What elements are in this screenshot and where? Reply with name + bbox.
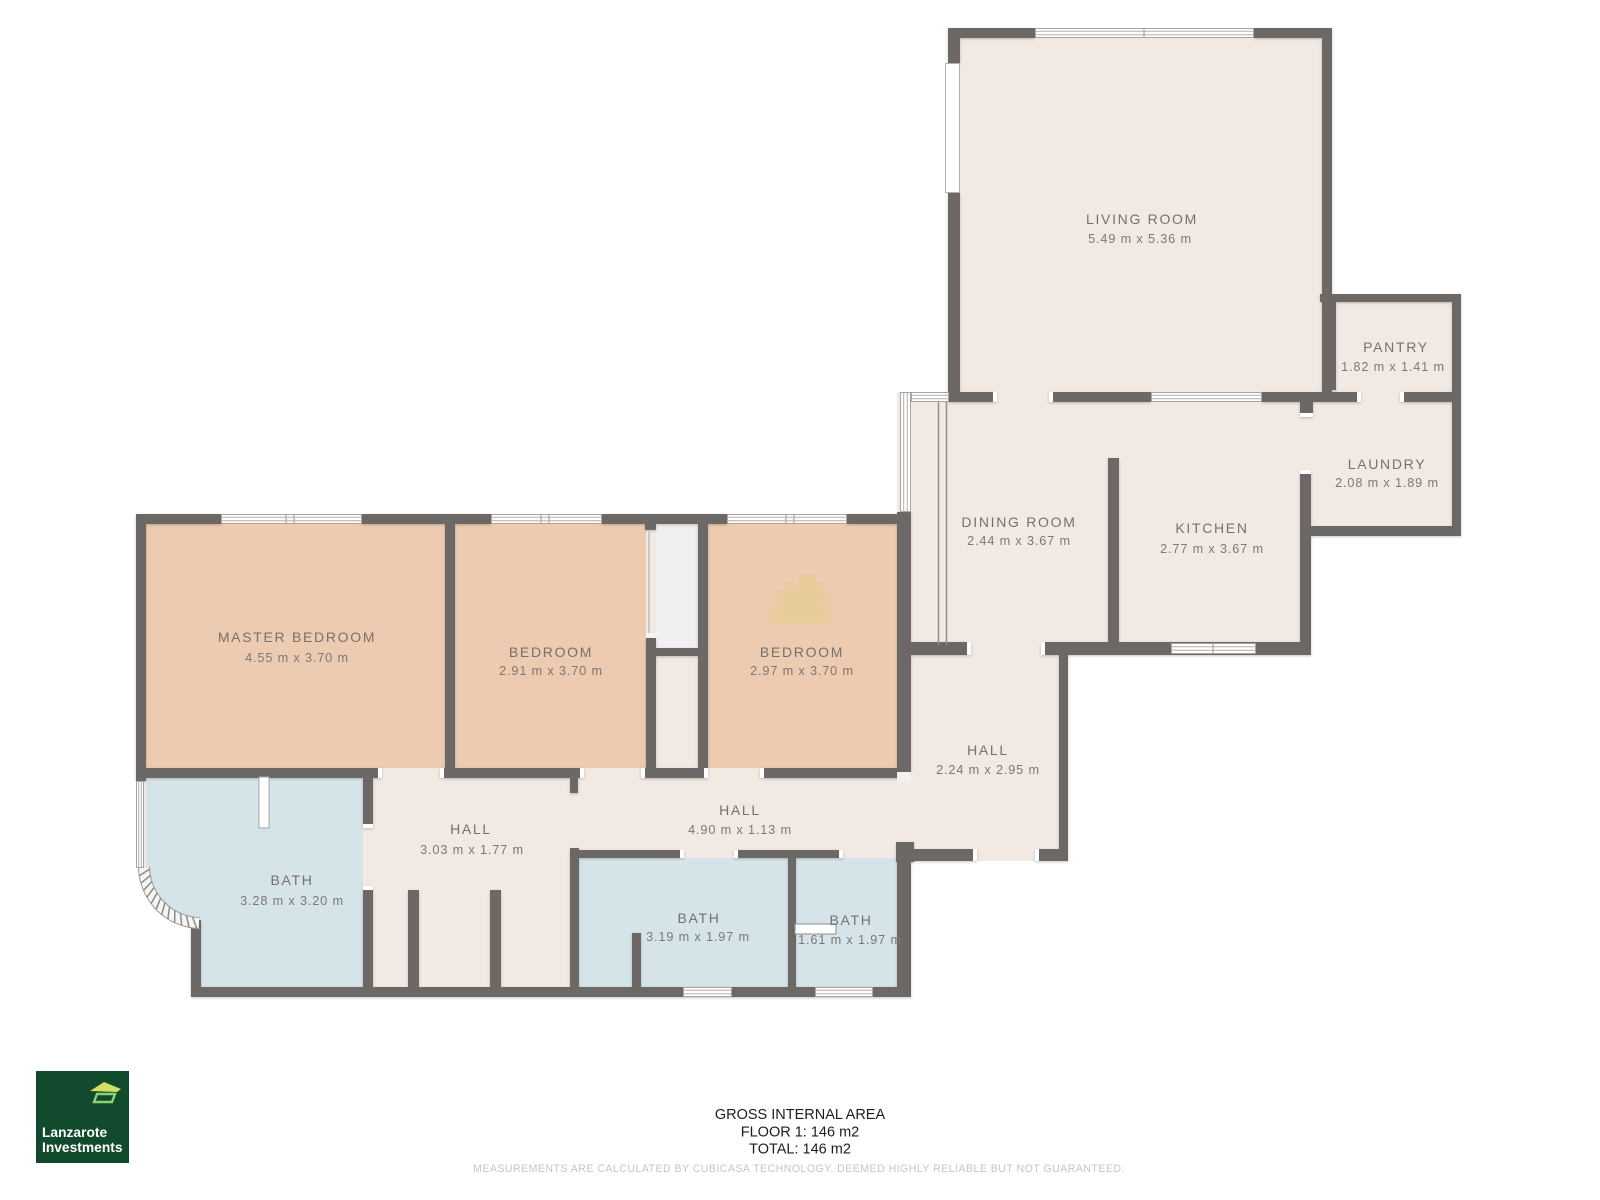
svg-text:HALL: HALL (450, 821, 492, 837)
svg-text:LAUNDRY: LAUNDRY (1348, 456, 1427, 472)
svg-text:2.97 m x 3.70 m: 2.97 m x 3.70 m (750, 664, 854, 678)
svg-text:5.49 m x 5.36 m: 5.49 m x 5.36 m (1088, 232, 1192, 246)
svg-text:2.77 m x 3.67 m: 2.77 m x 3.67 m (1160, 542, 1264, 556)
svg-text:2.91 m x 3.70 m: 2.91 m x 3.70 m (499, 664, 603, 678)
svg-text:BEDROOM: BEDROOM (760, 644, 844, 660)
svg-text:1.82 m x 1.41 m: 1.82 m x 1.41 m (1341, 360, 1445, 374)
svg-text:MEASUREMENTS ARE CALCULATED BY: MEASUREMENTS ARE CALCULATED BY CUBICASA … (473, 1163, 1125, 1175)
svg-text:3.19 m x 1.97 m: 3.19 m x 1.97 m (646, 930, 750, 944)
svg-text:HALL: HALL (719, 802, 761, 818)
svg-text:Investments: Investments (42, 1140, 123, 1155)
svg-text:4.90 m x 1.13 m: 4.90 m x 1.13 m (688, 823, 792, 837)
svg-text:DINING ROOM: DINING ROOM (961, 514, 1076, 530)
svg-text:BATH: BATH (829, 912, 872, 928)
svg-text:1.61 m x 1.97 m: 1.61 m x 1.97 m (798, 933, 902, 947)
svg-text:HALL: HALL (967, 742, 1009, 758)
svg-text:2.08 m x 1.89 m: 2.08 m x 1.89 m (1335, 476, 1439, 490)
svg-text:TOTAL: 146 m2: TOTAL: 146 m2 (749, 1142, 851, 1158)
svg-text:BEDROOM: BEDROOM (509, 644, 593, 660)
svg-text:3.03 m x 1.77 m: 3.03 m x 1.77 m (420, 843, 524, 857)
svg-text:KITCHEN: KITCHEN (1175, 520, 1248, 536)
svg-text:PANTRY: PANTRY (1363, 339, 1429, 355)
svg-text:2.24 m x 2.95 m: 2.24 m x 2.95 m (936, 763, 1040, 777)
svg-text:BATH: BATH (270, 872, 313, 888)
svg-text:MASTER BEDROOM: MASTER BEDROOM (218, 629, 376, 645)
svg-text:BATH: BATH (677, 910, 720, 926)
svg-text:3.28 m x 3.20 m: 3.28 m x 3.20 m (240, 894, 344, 908)
svg-text:Lanzarote: Lanzarote (42, 1125, 107, 1140)
svg-text:FLOOR 1: 146 m2: FLOOR 1: 146 m2 (741, 1125, 859, 1141)
svg-text:GROSS INTERNAL AREA: GROSS INTERNAL AREA (715, 1107, 886, 1123)
svg-text:4.55 m x 3.70 m: 4.55 m x 3.70 m (245, 651, 349, 665)
svg-text:LIVING ROOM: LIVING ROOM (1086, 211, 1198, 227)
svg-text:2.44 m x 3.67 m: 2.44 m x 3.67 m (967, 534, 1071, 548)
